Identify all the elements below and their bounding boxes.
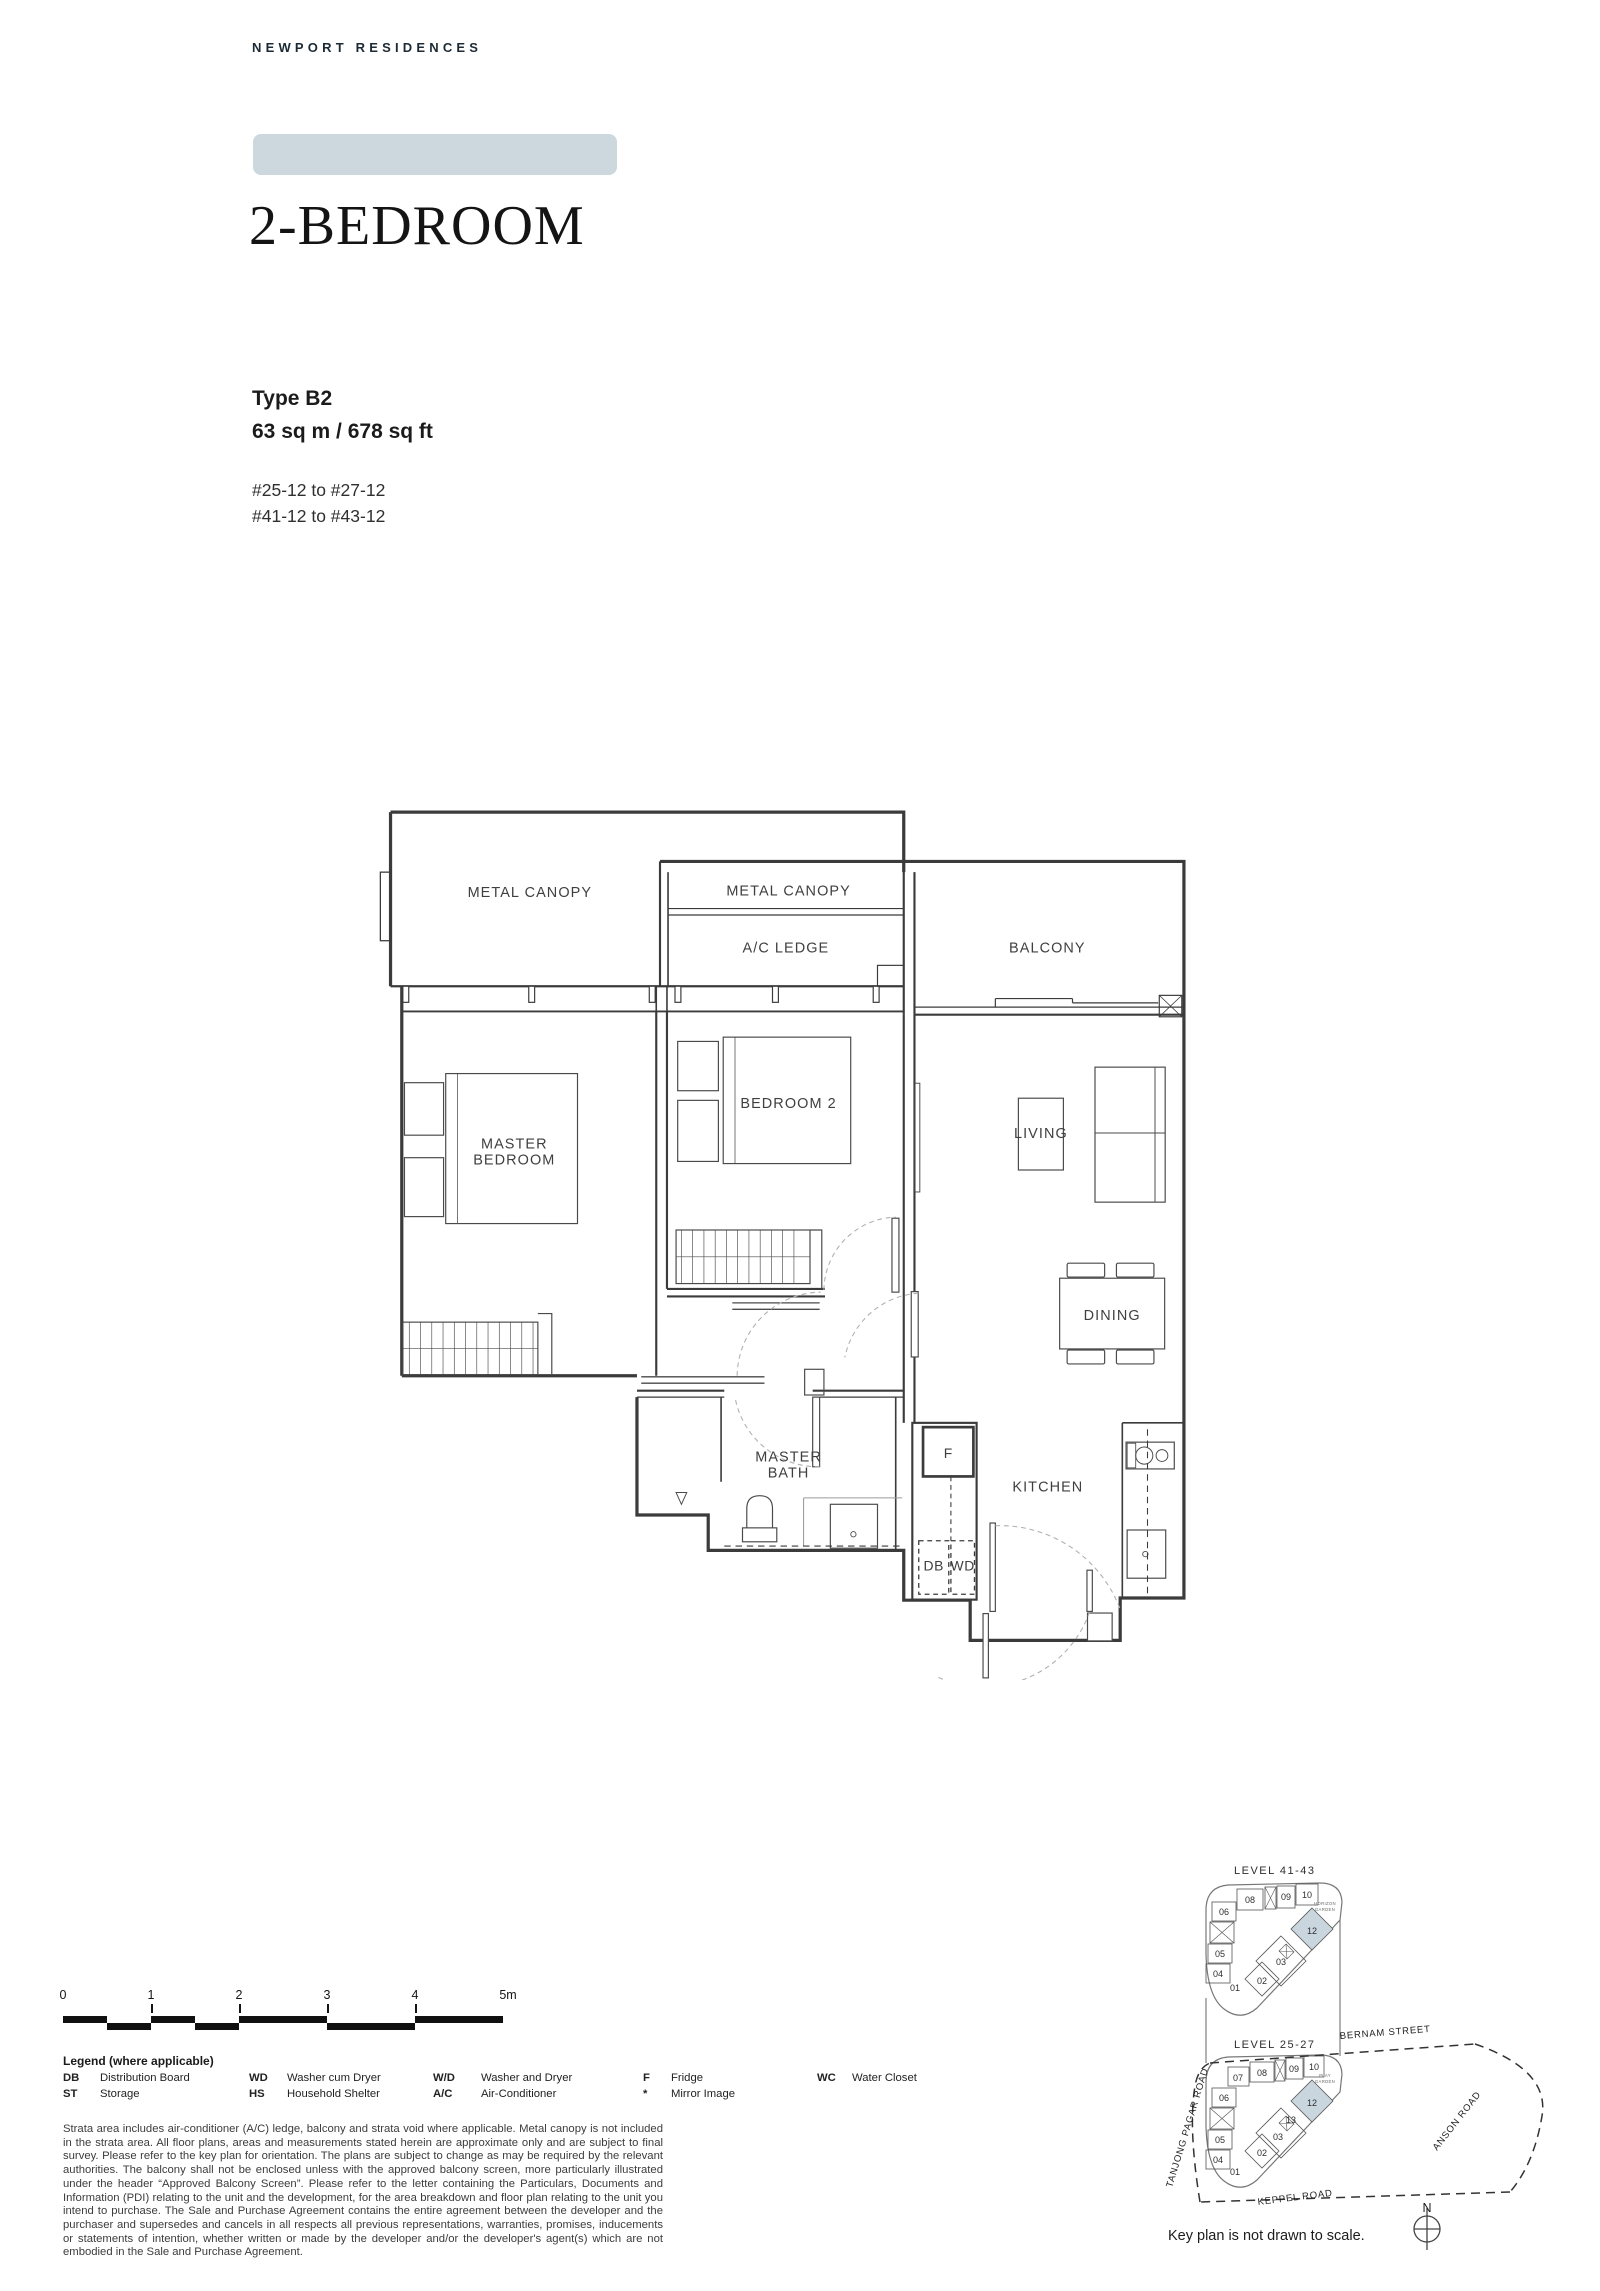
nightstand: [678, 1100, 719, 1161]
unit-area: 63 sq m / 678 sq ft: [252, 415, 433, 448]
scale-tick: 3: [324, 1988, 331, 2002]
legend-label: Storage: [100, 2088, 140, 2100]
legend-abbr: W/D: [433, 2072, 455, 2084]
north-compass: N: [1414, 2201, 1440, 2250]
label-master-bath: MASTER: [755, 1449, 822, 1465]
unit-label-highlighted: 12: [1307, 2098, 1317, 2108]
scale-tick: 5m: [499, 1988, 516, 2002]
scale-segment: [63, 2016, 107, 2023]
unit-label: 02: [1257, 1976, 1267, 1986]
legend-abbr: F: [643, 2072, 650, 2084]
legend-abbr: HS: [249, 2088, 265, 2100]
sliding-door: [732, 1303, 819, 1309]
unit-label: 10: [1302, 1890, 1312, 1900]
label-living: LIVING: [1014, 1126, 1068, 1142]
scale-tick: 2: [236, 1988, 243, 2002]
scale-tickmark: [239, 2004, 241, 2013]
unit-label: 03: [1276, 1957, 1286, 1967]
label-bedroom2: BEDROOM 2: [740, 1096, 836, 1112]
legend-label: Washer cum Dryer: [287, 2072, 381, 2084]
label-metal-canopy-left: METAL CANOPY: [468, 885, 592, 901]
garden-label: PLAY: [1319, 2073, 1331, 2078]
legend-abbr: A/C: [433, 2088, 452, 2100]
unit-numbers-block: #25-12 to #27-12 #41-12 to #43-12: [252, 477, 385, 529]
kitchen-sink: [1126, 1442, 1174, 1469]
disclaimer-text: Strata area includes air-conditioner (A/…: [63, 2123, 663, 2260]
unit-label: 04: [1213, 1969, 1223, 1979]
nightstand: [678, 1041, 719, 1090]
door-leaf: [1087, 1570, 1092, 1611]
label-kitchen: KITCHEN: [1012, 1479, 1083, 1495]
keyplan-level2-title: LEVEL 25-27: [1234, 2039, 1316, 2051]
label-fridge: F: [944, 1445, 953, 1461]
dining-chair: [1067, 1350, 1105, 1364]
scale-tickmark: [415, 2004, 417, 2013]
street-bernam: BERNAM STREET: [1339, 2024, 1431, 2042]
unit-label: 04: [1213, 2155, 1223, 2165]
label-balcony: BALCONY: [1009, 941, 1086, 957]
floor-trap: [676, 1493, 687, 1505]
door-leaf: [983, 1614, 988, 1678]
unit-label-highlighted: 12: [1307, 1926, 1317, 1936]
unit-label: 09: [1289, 2064, 1299, 2074]
label-metal-canopy-mid: METAL CANOPY: [726, 884, 851, 900]
scale-segment: [107, 2023, 151, 2030]
page-title: 2-BEDROOM: [249, 194, 585, 258]
nightstand: [404, 1158, 443, 1217]
street-anson: ANSON ROAD: [1431, 2089, 1484, 2152]
nightstand: [404, 1083, 443, 1136]
street-keppel: KEPPEL ROAD: [1257, 2188, 1333, 2208]
keyplan-level1-title: LEVEL 41-43: [1234, 1865, 1316, 1877]
legend-label: Mirror Image: [671, 2088, 735, 2100]
road-boundary: [1192, 2044, 1542, 2202]
unit-label: 01: [1230, 1983, 1240, 1993]
door-leaf: [892, 1218, 899, 1292]
legend-abbr: *: [643, 2088, 647, 2100]
unit-label: 09: [1281, 1892, 1291, 1902]
unit-range-1: #25-12 to #27-12: [252, 477, 385, 503]
legend-label: Distribution Board: [100, 2072, 190, 2084]
legend-label: Household Shelter: [287, 2088, 380, 2100]
door-leaf: [990, 1523, 995, 1611]
legend-label: Fridge: [671, 2072, 703, 2084]
scale-segment: [239, 2016, 327, 2023]
keyplan-level-41-43: LEVEL 41-43 08 09 10 06: [1206, 1865, 1342, 2015]
legend-label: Washer and Dryer: [481, 2072, 572, 2084]
keyplan-note: Key plan is not drawn to scale.: [1168, 2228, 1365, 2244]
label-dining: DINING: [1084, 1308, 1141, 1324]
legend-label: Air-Conditioner: [481, 2088, 556, 2100]
label-wd: WD: [951, 1558, 975, 1574]
unit-label: 10: [1309, 2062, 1319, 2072]
unit-label: 13: [1286, 2115, 1296, 2125]
unit-label: 05: [1215, 2135, 1225, 2145]
accent-bar: [253, 134, 617, 175]
scale-tick: 4: [412, 1988, 419, 2002]
dining-chair: [1116, 1263, 1154, 1277]
sliding-door: [641, 1377, 764, 1383]
unit-type: Type B2: [252, 382, 433, 415]
toilet: [743, 1528, 777, 1542]
north-label: N: [1422, 2201, 1431, 2215]
legend-abbr: ST: [63, 2088, 77, 2100]
scale-bar: [63, 2016, 503, 2030]
floor-plan-drawing: METAL CANOPY METAL CANOPY A/C LEDGE BALC…: [360, 780, 1200, 1680]
counter-lines: [804, 1498, 903, 1546]
label-master-bath: BATH: [768, 1466, 810, 1482]
garden-label: HORIZON: [1314, 1901, 1336, 1906]
scale-segment: [415, 2016, 503, 2023]
key-plan: LEVEL 41-43 08 09 10 06: [1140, 1858, 1600, 2288]
street-tanjong-pagar: TANJONG PAGAR ROAD: [1164, 2067, 1211, 2189]
legend-label: Water Closet: [852, 2072, 917, 2084]
unit-label: 06: [1219, 1907, 1229, 1917]
unit-type-block: Type B2 63 sq m / 678 sq ft: [252, 382, 433, 448]
brochure-page: NEWPORT RESIDENCES 2-BEDROOM Type B2 63 …: [0, 0, 1600, 2291]
vanity: [830, 1504, 877, 1548]
unit-label: 05: [1215, 1949, 1225, 1959]
dining-chair: [1116, 1350, 1154, 1364]
garden-label: GARDEN: [1315, 1907, 1335, 1912]
scale-segment: [327, 2023, 415, 2030]
hob: [1127, 1530, 1166, 1578]
walls: [380, 812, 1184, 1640]
legend-title: Legend (where applicable): [63, 2054, 214, 2068]
dining-chair: [1067, 1263, 1105, 1277]
legend-abbr: WC: [817, 2072, 836, 2084]
label-master-bedroom: MASTER: [481, 1137, 548, 1153]
unit-label: 03: [1273, 2132, 1283, 2142]
unit-label: 08: [1257, 2068, 1267, 2078]
scale-tick: 1: [148, 1988, 155, 2002]
label-db: DB: [924, 1558, 944, 1574]
unit-label: 02: [1257, 2148, 1267, 2158]
scale-segment: [195, 2023, 239, 2030]
unit-label: 06: [1219, 2093, 1229, 2103]
scale-tickmark: [327, 2004, 329, 2013]
label-ac-ledge: A/C LEDGE: [743, 941, 830, 957]
door-leaf: [911, 1292, 918, 1357]
unit-label: 01: [1230, 2167, 1240, 2177]
legend-abbr: DB: [63, 2072, 79, 2084]
scale-tickmark: [151, 2004, 153, 2013]
unit-label: 07: [1233, 2073, 1243, 2083]
door-leaf: [915, 1083, 920, 1192]
project-name: NEWPORT RESIDENCES: [252, 40, 482, 55]
unit-range-2: #41-12 to #43-12: [252, 503, 385, 529]
scale-segment: [151, 2016, 195, 2023]
scale-tick: 0: [60, 1988, 67, 2002]
door-swings: [735, 1217, 1120, 1680]
unit-label: 08: [1245, 1895, 1255, 1905]
label-master-bedroom: BEDROOM: [473, 1153, 555, 1169]
garden-label: GARDEN: [1315, 2079, 1335, 2084]
legend-abbr: WD: [249, 2072, 268, 2084]
